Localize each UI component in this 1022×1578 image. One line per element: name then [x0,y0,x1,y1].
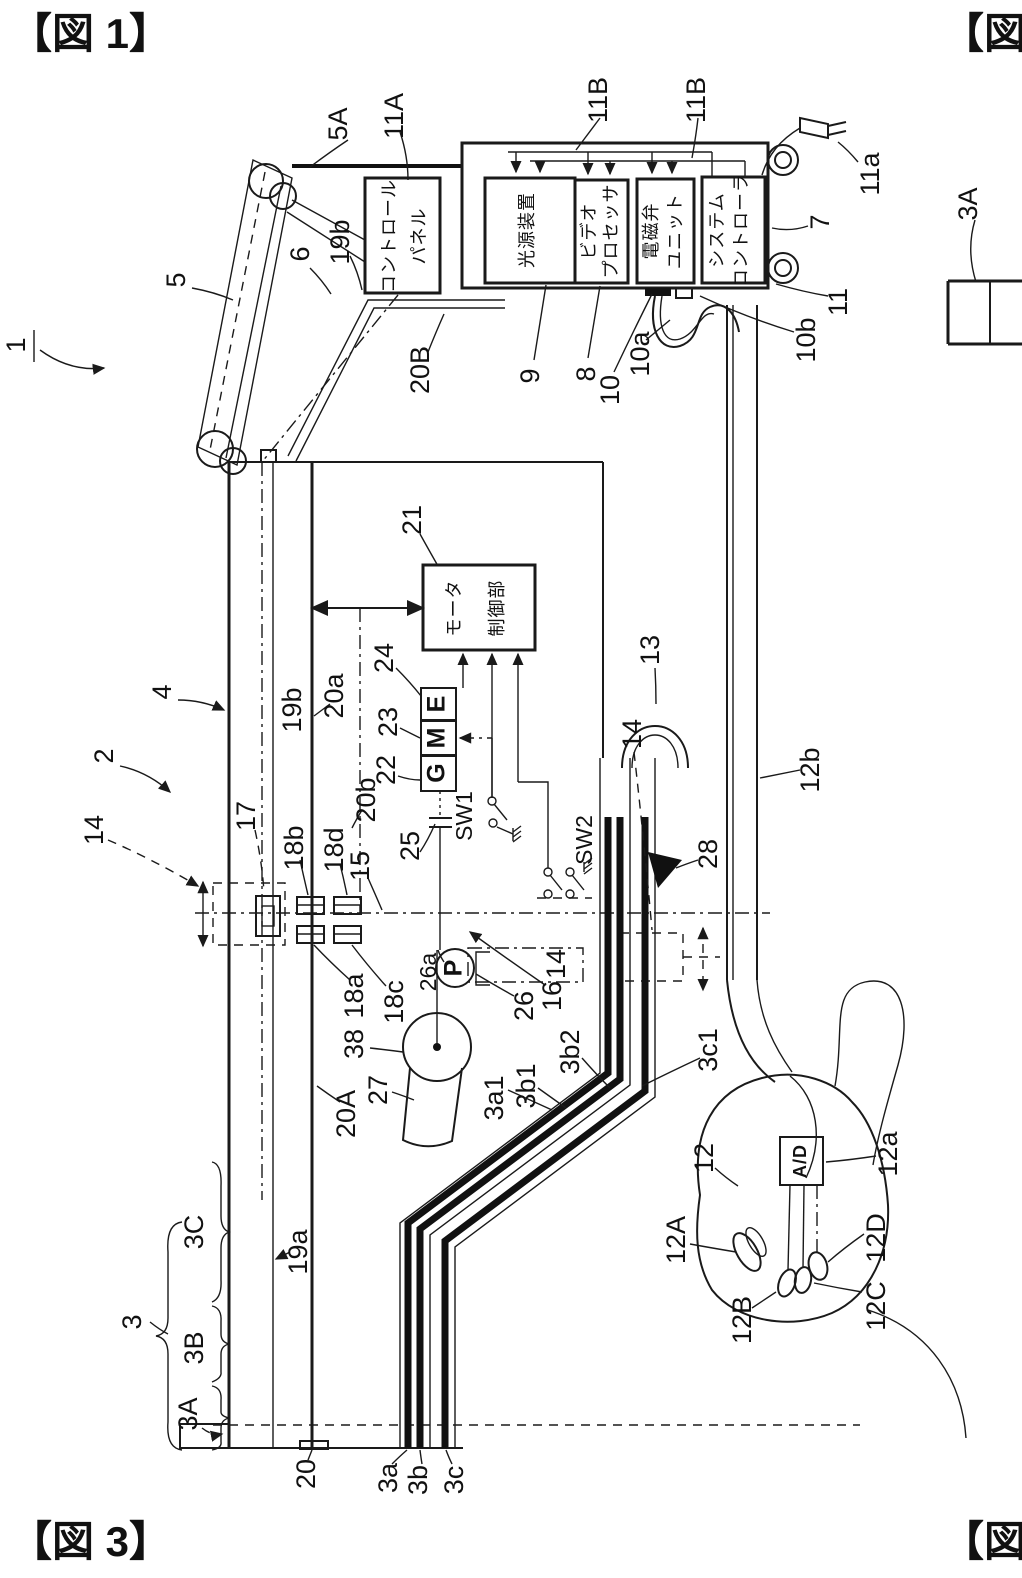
ref-label-15: 15 [345,851,375,881]
ref-label-5: 5 [161,272,191,287]
fig1-marker: 【図 1】 [10,10,171,57]
caster-top [768,145,798,175]
ref-label-19a: 19a [283,1228,313,1274]
ref-label-2: 2 [89,748,119,763]
motor-control-label-2: 制御部 [487,580,507,637]
ref-label-14-3: 14 [617,719,647,749]
ref-label-20A: 20A [331,1090,361,1138]
solenoid-valve-label-2: ユニット [665,193,685,269]
tube-top-connector [261,450,276,462]
ref-label-3c: 3c [439,1466,469,1495]
ref-label-20: 20 [291,1459,321,1489]
ad-converter-label: A/D [790,1144,810,1178]
pump-letter: P [440,960,468,977]
motor-control-label-1: モータ [444,580,464,637]
ref-label-SW2: SW2 [571,815,597,865]
ref-label-18b: 18b [279,825,309,870]
ref-label-5A: 5A [323,107,353,140]
letter-E: E [423,696,451,713]
ref-label-11B-1: 11B [583,77,613,123]
solenoid-valve-label-1: 電磁弁 [641,203,661,260]
ref-label-24: 24 [369,643,399,673]
drive-mechanism [195,882,770,990]
control-panel-label-1: コントロール [379,179,399,293]
ref-label-20B: 20B [405,346,435,394]
ref-label-12b: 12b [795,747,825,792]
leader-lines [34,118,976,1464]
clutch-block [256,896,280,936]
fig2-marker-partial: 【図 [942,10,1022,57]
channel-bundle [400,726,688,1448]
adjacent-figure-fragment [948,281,1022,344]
system-controller-label-1: システム [707,192,727,267]
ref-label-12D: 12D [861,1213,891,1263]
ref-label-1: 1 [1,337,31,352]
video-processor-label-1: ビデオ [579,203,599,260]
letter-M: M [423,728,451,749]
fig4-marker-partial: 【図 [942,1518,1022,1565]
ref-label-3A-fig2: 3A [953,187,983,220]
ref-label-13: 13 [635,635,665,665]
control-bus-wires [508,152,745,177]
ref-label-14-1: 14 [79,815,109,845]
drive-rollers [297,897,361,943]
ref-label-18d: 18d [319,827,349,872]
ref-label-16: 16 [537,981,567,1011]
monitor-arm [197,160,462,474]
ref-label-10b: 10b [791,317,821,362]
ref-label-25: 25 [395,831,425,861]
ref-label-6: 6 [285,246,315,261]
ref-label-20a: 20a [319,672,349,718]
spool-axis-dot [433,1043,441,1051]
equipment-cart: コントロール パネル 光源装置 ビデオ プロセッサ 電磁弁 ユニット システム … [365,118,846,347]
light-source-label: 光源装置 [517,192,537,268]
ref-label-10a: 10a [625,330,655,376]
ref-label-3a1: 3a1 [479,1075,509,1120]
ref-label-12a: 12a [873,1130,903,1176]
ref-label-3: 3 [117,1314,147,1329]
fig3-marker: 【図 3】 [10,1518,171,1565]
system-controller-label-2: コントローラ [731,173,751,287]
controller-body [697,1075,888,1322]
video-processor-label-2: プロセッサ [601,184,621,279]
ref-label-19b-1: 19b [325,219,355,264]
ref-label-12: 12 [689,1143,719,1173]
remote-unit: A/D [697,305,966,1438]
ref-label-3b: 3b [403,1465,433,1495]
ref-label-22: 22 [371,755,401,785]
arm-roller-top [249,164,283,198]
ref-label-3b1: 3b1 [511,1063,541,1108]
ref-label-11B-2: 11B [681,77,711,123]
ref-label-12A: 12A [661,1216,691,1264]
lever-12D [806,1250,831,1282]
ref-label-11A: 11A [379,93,409,139]
wedge-28 [648,852,682,888]
ref-label-28: 28 [693,839,723,869]
patent-figure-page: 【図 1】 【図 【図 3】 【図 コントロール パネル 光源装置 ビデオ プロ… [0,0,1022,1578]
ref-label-14-2: 14 [541,949,571,979]
letter-G: G [423,763,451,782]
ref-label-26: 26 [509,991,539,1021]
ref-label-7: 7 [805,214,835,229]
ref-label-12C: 12C [861,1281,891,1331]
monitor-outline [198,160,292,465]
ref-label-18a: 18a [339,972,369,1018]
ref-label-3a: 3a [373,1462,403,1493]
ref-label-27: 27 [363,1075,393,1105]
ref-label-11: 11 [823,288,853,316]
connector-10a [645,288,671,296]
ref-label-3B: 3B [179,1331,209,1364]
ref-label-3c1: 3c1 [693,1028,723,1072]
caster-bottom [768,253,798,283]
ref-label-12B: 12B [727,1296,757,1344]
control-panel-box [365,178,440,293]
ref-label-23: 23 [373,707,403,737]
ref-label-18c: 18c [379,980,409,1024]
ref-label-17: 17 [231,801,261,831]
ref-label-3C: 3C [179,1215,209,1250]
motor-control-box [423,565,535,650]
ref-label-11a: 11a [855,151,885,195]
ref-label-38: 38 [339,1029,369,1059]
ref-label-4: 4 [147,684,177,699]
ref-label-10: 10 [595,375,625,405]
ref-label-3A-tip: 3A [173,1397,203,1430]
ref-label-3b2: 3b2 [555,1029,585,1074]
ref-label-SW1: SW1 [451,791,477,841]
ref-label-21: 21 [397,505,427,535]
ref-label-9: 9 [515,368,545,383]
ref-label-19b-2: 19b [277,687,307,732]
control-panel-label-2: パネル [409,208,429,265]
ref-label-26a: 26a [415,953,441,992]
